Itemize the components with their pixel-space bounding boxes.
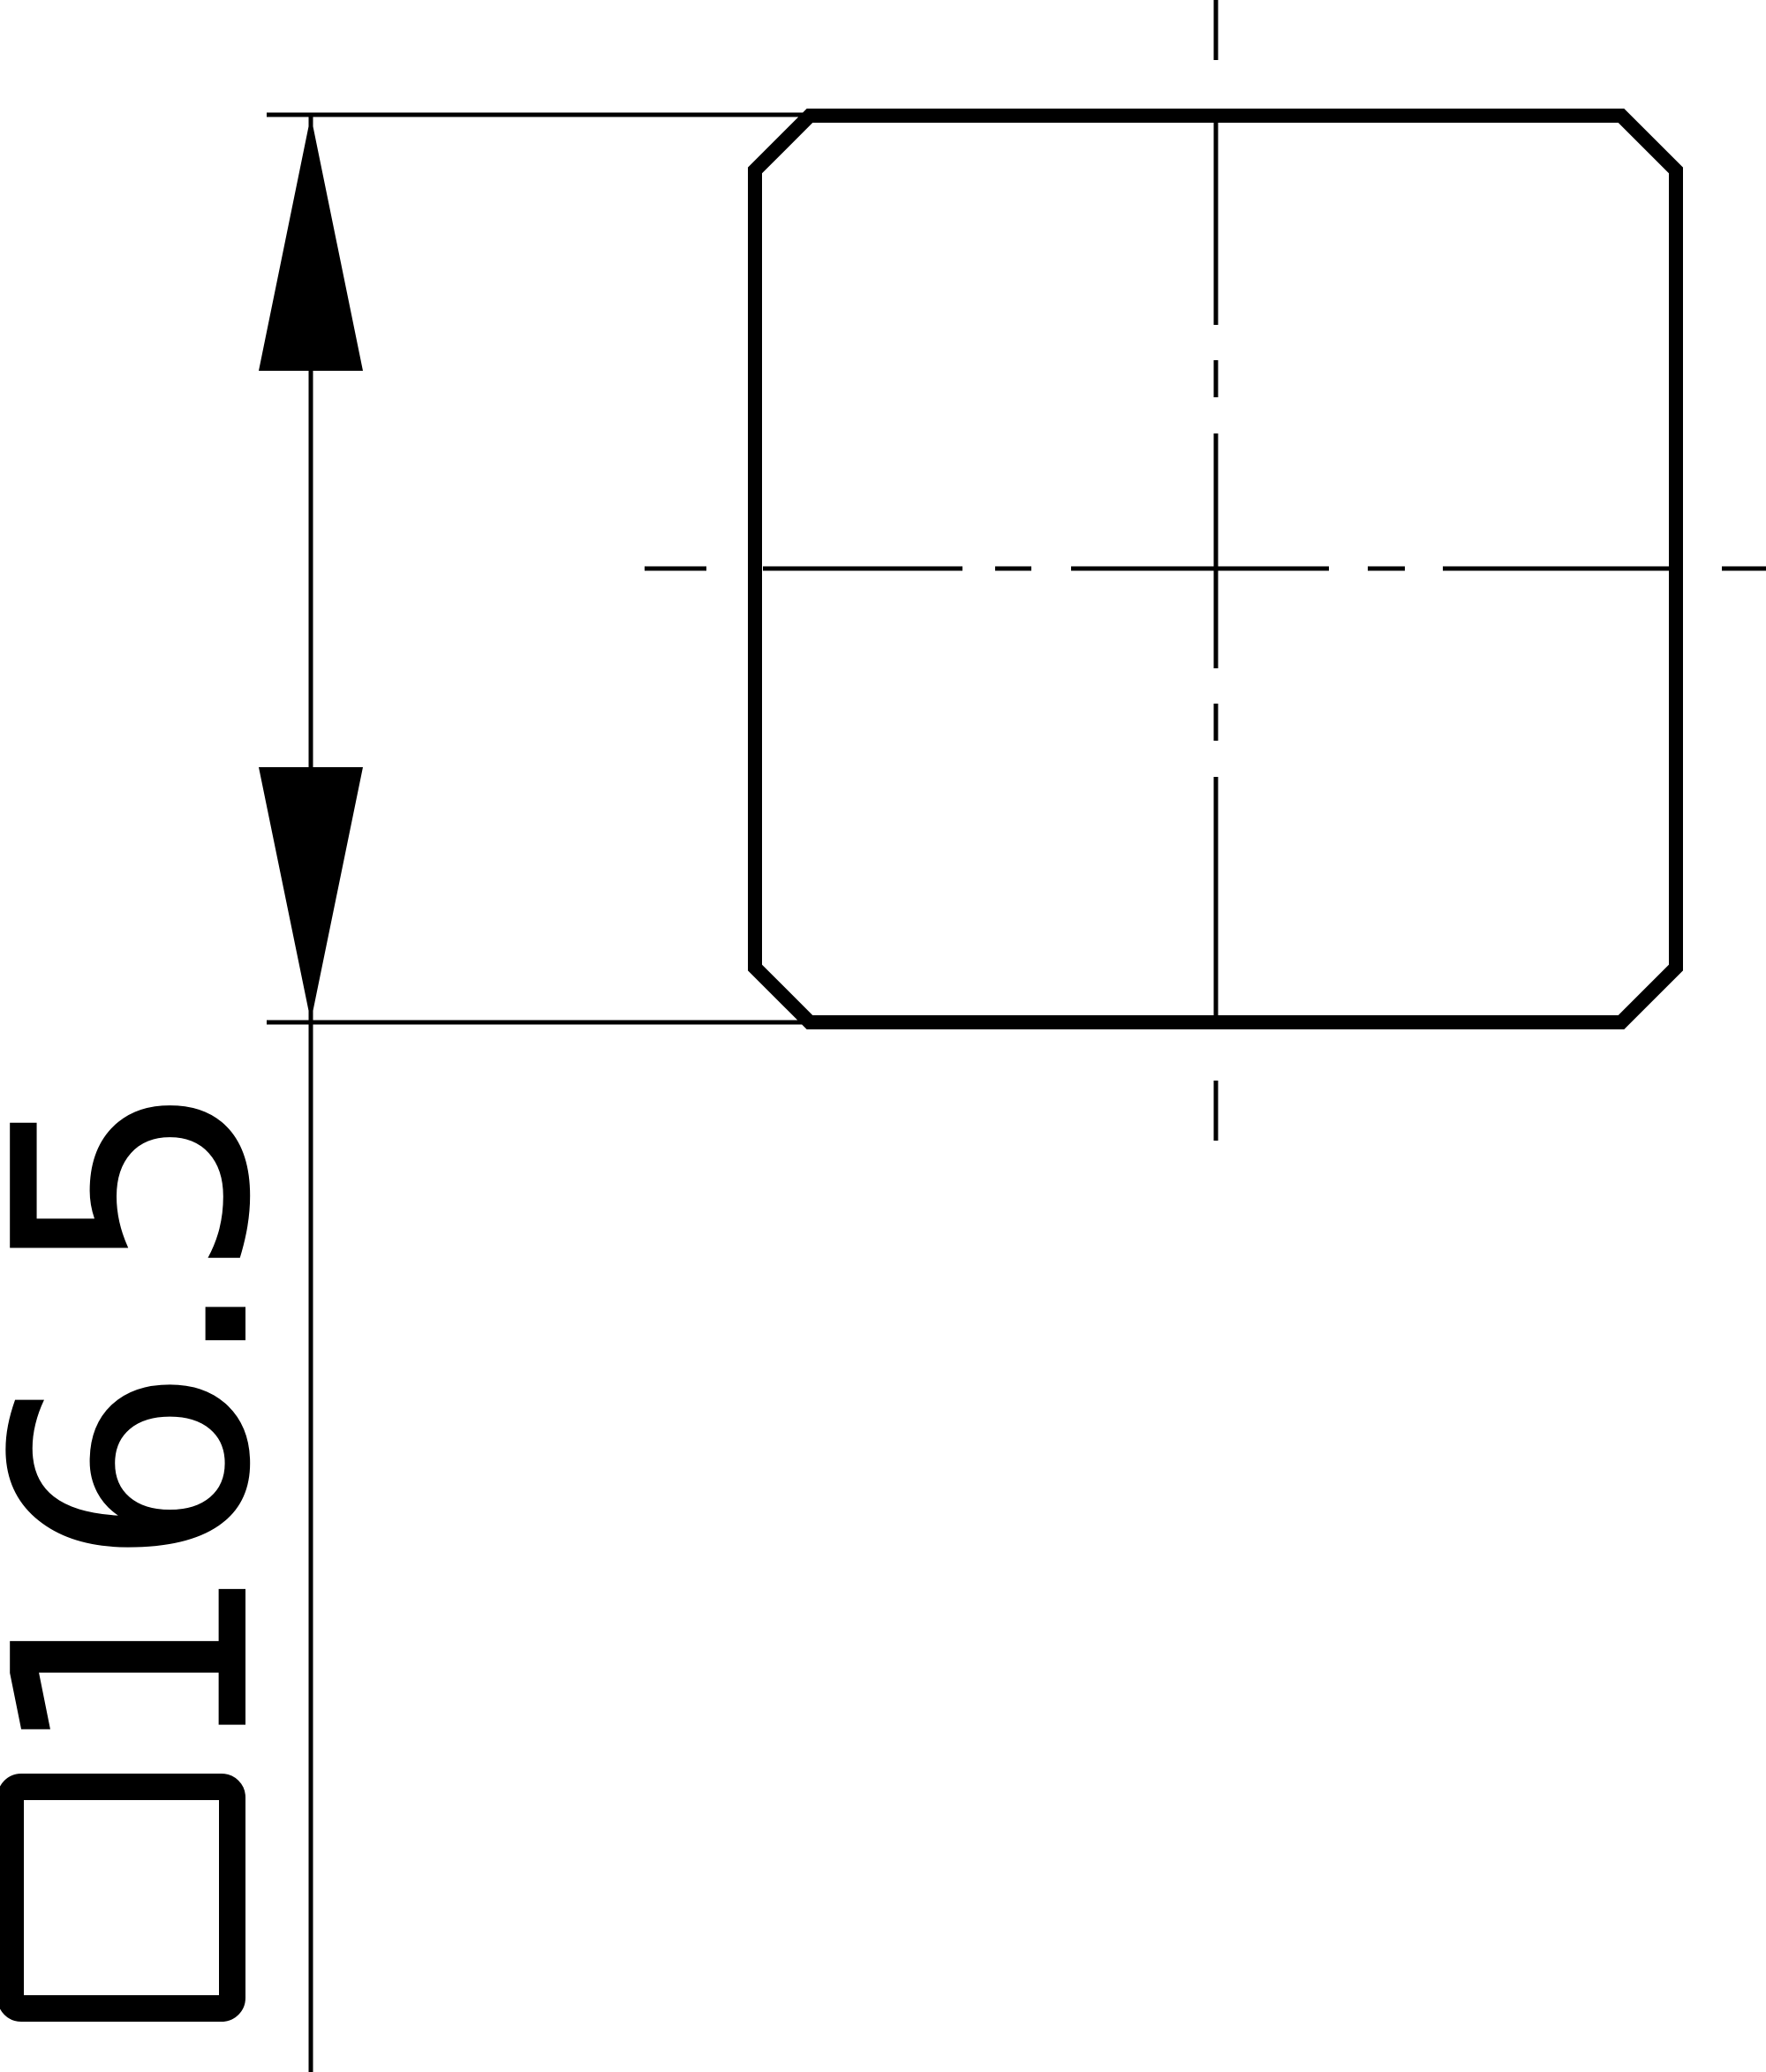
square-section-symbol <box>11 1787 232 2008</box>
drawing-canvas: 16.5 <box>0 0 1766 2072</box>
dimension-arrow-down <box>259 767 363 1021</box>
dimension-arrow-up <box>259 116 363 371</box>
dimension-value: 16.5 <box>0 1088 322 1765</box>
dimension-label: 16.5 <box>0 1088 322 2008</box>
